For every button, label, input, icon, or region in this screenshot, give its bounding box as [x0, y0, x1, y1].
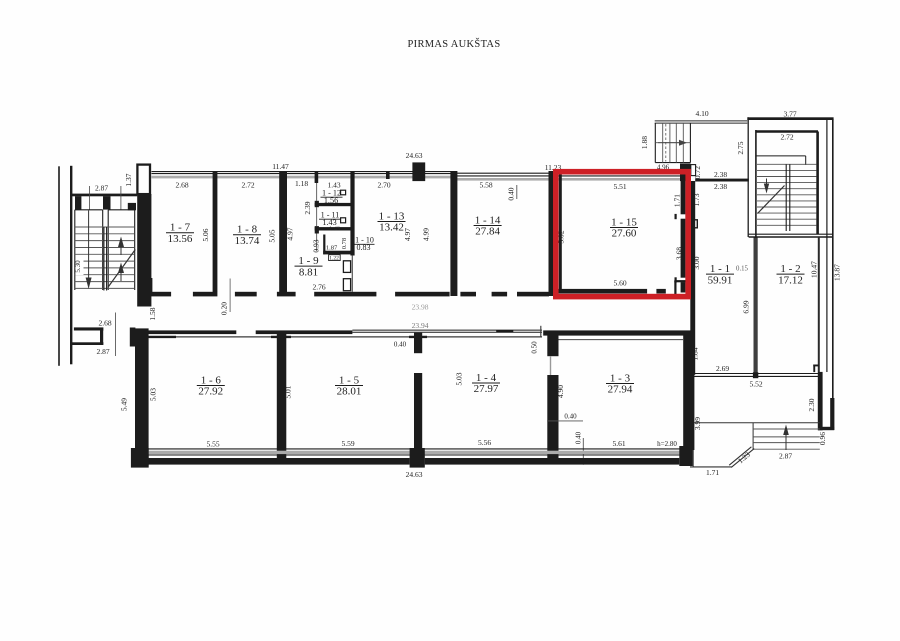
svg-text:5.61: 5.61: [612, 439, 625, 448]
svg-text:1.87: 1.87: [326, 244, 338, 251]
svg-text:0.78: 0.78: [341, 238, 348, 249]
svg-text:2.68: 2.68: [175, 181, 188, 190]
svg-text:1.84: 1.84: [690, 347, 699, 360]
svg-text:1.71: 1.71: [706, 468, 719, 477]
svg-text:5.60: 5.60: [613, 279, 626, 288]
svg-text:4.10: 4.10: [695, 109, 708, 118]
svg-text:1.56: 1.56: [324, 196, 338, 205]
svg-text:2.72: 2.72: [241, 181, 254, 190]
svg-text:5.51: 5.51: [613, 182, 626, 191]
svg-text:5.58: 5.58: [479, 180, 492, 189]
svg-text:1 - 3: 1 - 3: [610, 372, 631, 384]
svg-text:0.40: 0.40: [507, 187, 516, 200]
svg-text:13.74: 13.74: [235, 235, 260, 247]
svg-text:1.18: 1.18: [295, 179, 308, 188]
svg-text:23.98: 23.98: [412, 303, 429, 312]
svg-text:13.42: 13.42: [379, 222, 404, 234]
svg-text:1.43: 1.43: [329, 226, 340, 233]
svg-text:17.12: 17.12: [778, 274, 803, 286]
svg-text:1.58: 1.58: [148, 307, 157, 320]
svg-text:0.15: 0.15: [736, 266, 748, 273]
svg-text:2.38: 2.38: [714, 182, 727, 191]
svg-text:27.84: 27.84: [475, 226, 500, 238]
svg-text:24.63: 24.63: [406, 151, 423, 160]
svg-text:5.03: 5.03: [454, 372, 463, 385]
svg-text:1.37: 1.37: [124, 173, 133, 186]
svg-text:1 - 2: 1 - 2: [780, 263, 800, 275]
svg-text:0.20: 0.20: [219, 302, 228, 315]
svg-text:24.63: 24.63: [406, 470, 423, 479]
svg-text:1.71: 1.71: [673, 194, 682, 207]
svg-text:1.73: 1.73: [692, 193, 701, 206]
svg-text:2.39: 2.39: [303, 201, 312, 214]
svg-text:2.70: 2.70: [377, 180, 390, 189]
svg-text:5.52: 5.52: [749, 380, 762, 389]
svg-text:0.83: 0.83: [357, 243, 371, 252]
svg-text:2.38: 2.38: [714, 170, 727, 179]
svg-text:3.00: 3.00: [692, 256, 701, 269]
svg-text:2.87: 2.87: [95, 184, 108, 193]
svg-text:28.01: 28.01: [337, 386, 362, 398]
svg-text:27.92: 27.92: [198, 386, 223, 398]
svg-text:5.59: 5.59: [341, 439, 354, 448]
svg-text:3.68: 3.68: [675, 247, 684, 260]
svg-text:h=2.80: h=2.80: [657, 440, 677, 448]
svg-text:1 - 4: 1 - 4: [476, 372, 497, 384]
svg-text:4.90: 4.90: [556, 385, 565, 398]
svg-text:0.40: 0.40: [564, 412, 577, 420]
svg-text:5.03: 5.03: [148, 388, 157, 401]
svg-text:27.97: 27.97: [474, 383, 499, 395]
svg-text:0.72: 0.72: [693, 166, 702, 179]
svg-text:6.99: 6.99: [741, 300, 750, 313]
svg-text:1 - 5: 1 - 5: [339, 374, 360, 386]
svg-text:2.72: 2.72: [780, 133, 793, 142]
svg-text:1 - 9: 1 - 9: [298, 255, 319, 267]
svg-text:13.87: 13.87: [833, 264, 842, 281]
svg-text:2.68: 2.68: [98, 319, 111, 328]
svg-text:59.91: 59.91: [708, 274, 733, 286]
svg-text:2.30: 2.30: [807, 398, 816, 411]
svg-text:1.88: 1.88: [640, 136, 649, 149]
svg-text:1 - 8: 1 - 8: [237, 224, 258, 236]
svg-text:27.60: 27.60: [612, 228, 637, 240]
svg-text:1 - 15: 1 - 15: [611, 216, 637, 228]
svg-text:4.97: 4.97: [403, 228, 412, 241]
svg-text:1 - 7: 1 - 7: [170, 222, 191, 234]
svg-text:23.94: 23.94: [412, 321, 429, 330]
svg-text:2.69: 2.69: [716, 364, 729, 373]
svg-text:1 - 1: 1 - 1: [710, 263, 730, 275]
svg-text:2.87: 2.87: [96, 347, 109, 356]
svg-text:2.87: 2.87: [779, 451, 792, 460]
svg-text:0.40: 0.40: [394, 341, 407, 349]
svg-text:0.50: 0.50: [531, 341, 539, 354]
svg-text:8.81: 8.81: [299, 266, 318, 278]
svg-text:4.97: 4.97: [286, 227, 295, 240]
svg-text:5.49: 5.49: [120, 398, 129, 411]
svg-text:5.06: 5.06: [201, 228, 210, 241]
svg-text:5.56: 5.56: [478, 438, 491, 447]
svg-text:PIRMAS AUKŠTAS: PIRMAS AUKŠTAS: [408, 38, 501, 50]
svg-text:3.77: 3.77: [783, 109, 796, 118]
svg-text:1 - 6: 1 - 6: [201, 374, 222, 386]
svg-text:1 - 13: 1 - 13: [379, 210, 405, 222]
svg-text:10.47: 10.47: [810, 261, 819, 278]
svg-text:0.40: 0.40: [574, 431, 582, 444]
svg-text:5.30: 5.30: [74, 260, 82, 273]
svg-text:3.99: 3.99: [693, 417, 702, 430]
svg-text:1 - 14: 1 - 14: [475, 214, 501, 226]
svg-text:11.47: 11.47: [272, 162, 289, 171]
svg-text:2.75: 2.75: [736, 141, 745, 154]
svg-text:5.01: 5.01: [283, 385, 292, 398]
svg-text:0.96: 0.96: [818, 432, 827, 445]
svg-text:1.22: 1.22: [329, 256, 339, 262]
svg-text:5.05: 5.05: [267, 229, 276, 242]
svg-text:5.55: 5.55: [206, 439, 219, 448]
svg-text:4.99: 4.99: [421, 228, 430, 241]
svg-text:2.76: 2.76: [312, 283, 325, 292]
svg-text:13.56: 13.56: [168, 233, 193, 245]
svg-text:0.93: 0.93: [312, 239, 321, 252]
svg-text:27.94: 27.94: [608, 384, 633, 396]
